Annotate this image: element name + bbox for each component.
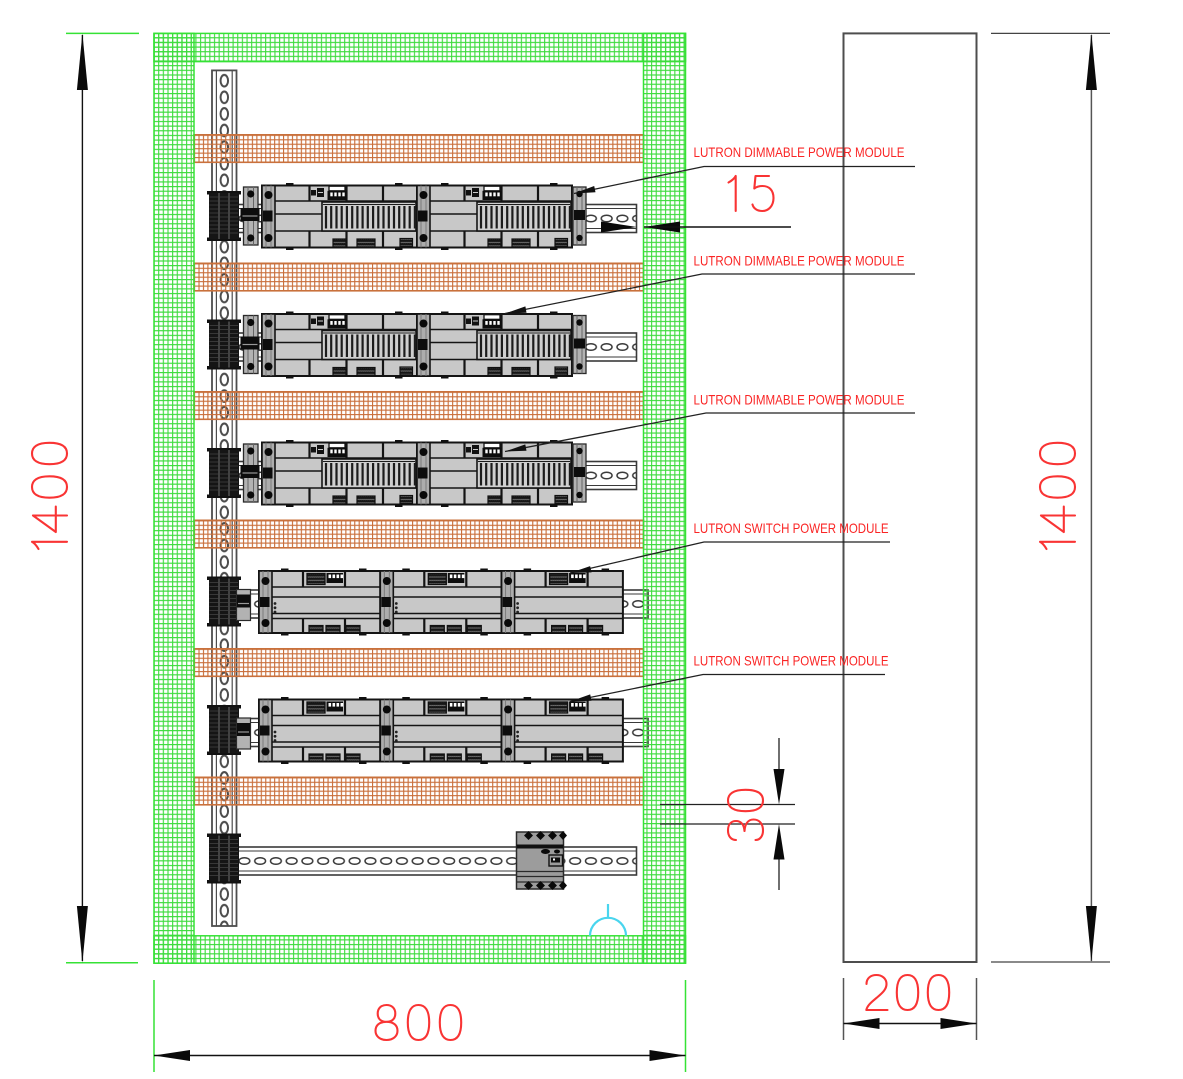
svg-text:LUTRON DIMMABLE POWER MODULE: LUTRON DIMMABLE POWER MODULE: [694, 145, 905, 160]
svg-text:LUTRON SWITCH POWER MODULE: LUTRON SWITCH POWER MODULE: [694, 654, 889, 669]
svg-text:LUTRON SWITCH POWER MODULE: LUTRON SWITCH POWER MODULE: [694, 521, 889, 536]
svg-text:LUTRON DIMMABLE POWER MODULE: LUTRON DIMMABLE POWER MODULE: [694, 254, 905, 269]
svg-text:LUTRON DIMMABLE POWER MODULE: LUTRON DIMMABLE POWER MODULE: [694, 393, 905, 408]
